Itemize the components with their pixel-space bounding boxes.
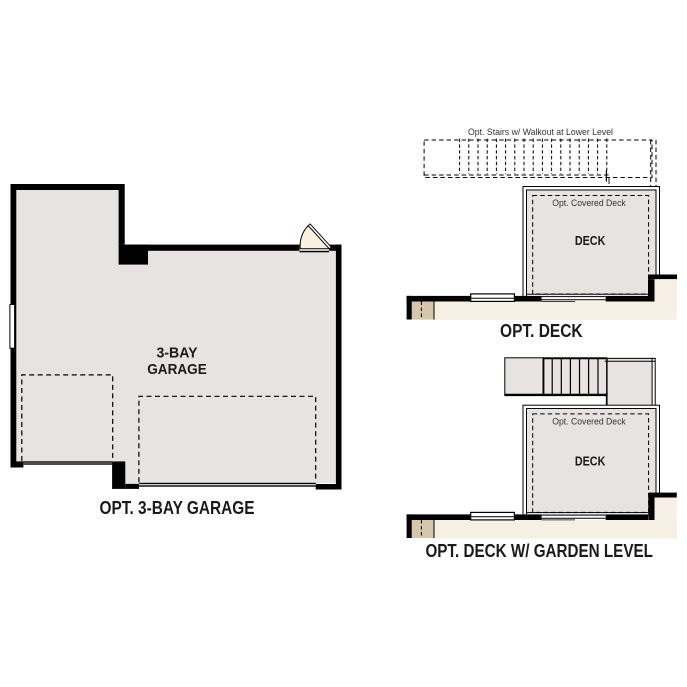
svg-text:Opt. Covered Deck: Opt. Covered Deck	[552, 198, 626, 208]
svg-text:OPT. DECK: OPT. DECK	[500, 321, 583, 341]
svg-text:3-BAY: 3-BAY	[157, 345, 198, 362]
svg-text:OPT. DECK W/ GARDEN LEVEL: OPT. DECK W/ GARDEN LEVEL	[425, 541, 653, 561]
svg-text:DECK: DECK	[575, 454, 606, 469]
svg-text:Opt. Stairs w/ Walkout at Lowe: Opt. Stairs w/ Walkout at Lower Level	[468, 127, 613, 137]
svg-text:DECK: DECK	[575, 233, 606, 248]
svg-text:Opt. Covered Deck: Opt. Covered Deck	[552, 417, 626, 427]
svg-text:GARAGE: GARAGE	[147, 361, 207, 378]
svg-text:OPT. 3-BAY GARAGE: OPT. 3-BAY GARAGE	[100, 498, 255, 518]
